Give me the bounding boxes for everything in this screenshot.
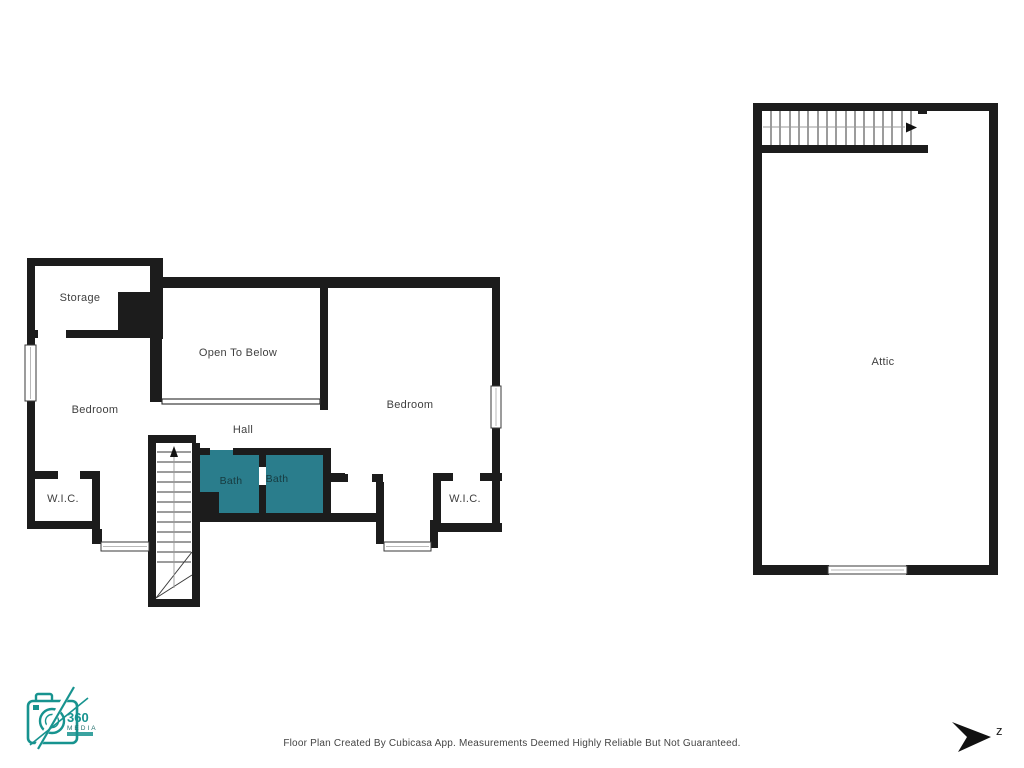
logo-number: 360 xyxy=(67,710,89,725)
window-bedroom-left xyxy=(25,345,36,401)
attic-label: Attic xyxy=(872,356,895,368)
hall-label: Hall xyxy=(233,424,253,436)
upper-floor-walls xyxy=(27,258,502,607)
wic-right-label: W.I.C. xyxy=(449,493,481,505)
logo-word: MEDIA xyxy=(67,725,98,732)
upper-stairs xyxy=(156,446,192,598)
upper-floor-plan xyxy=(25,258,502,607)
window-lower-middle xyxy=(384,542,431,551)
attic-stairs xyxy=(763,111,917,145)
wic-left-label: W.I.C. xyxy=(47,493,79,505)
bedroom-left-label: Bedroom xyxy=(72,404,119,416)
compass-letter: z xyxy=(996,723,1003,738)
open-to-below-railing xyxy=(162,399,320,404)
bedroom-right-label: Bedroom xyxy=(387,399,434,411)
open-to-below-label: Open To Below xyxy=(199,347,277,359)
attic-walls xyxy=(753,103,998,575)
floor-plan-canvas: Storage Open To Below Bedroom Bedroom Ha… xyxy=(0,0,1024,768)
footer-disclaimer: Floor Plan Created By Cubicasa App. Meas… xyxy=(283,738,740,749)
storage-label: Storage xyxy=(60,292,101,304)
window-bedroom-right xyxy=(491,386,501,428)
north-arrow-icon: z xyxy=(952,722,1003,752)
bath-right-label: Bath xyxy=(266,473,289,485)
window-lower-left xyxy=(101,542,149,551)
bath-left-label: Bath xyxy=(220,475,243,487)
logo-360-media: 360 MEDIA xyxy=(28,687,98,749)
attic-floor-plan xyxy=(753,103,998,575)
logo-banner xyxy=(67,732,93,736)
attic-window xyxy=(828,566,907,574)
